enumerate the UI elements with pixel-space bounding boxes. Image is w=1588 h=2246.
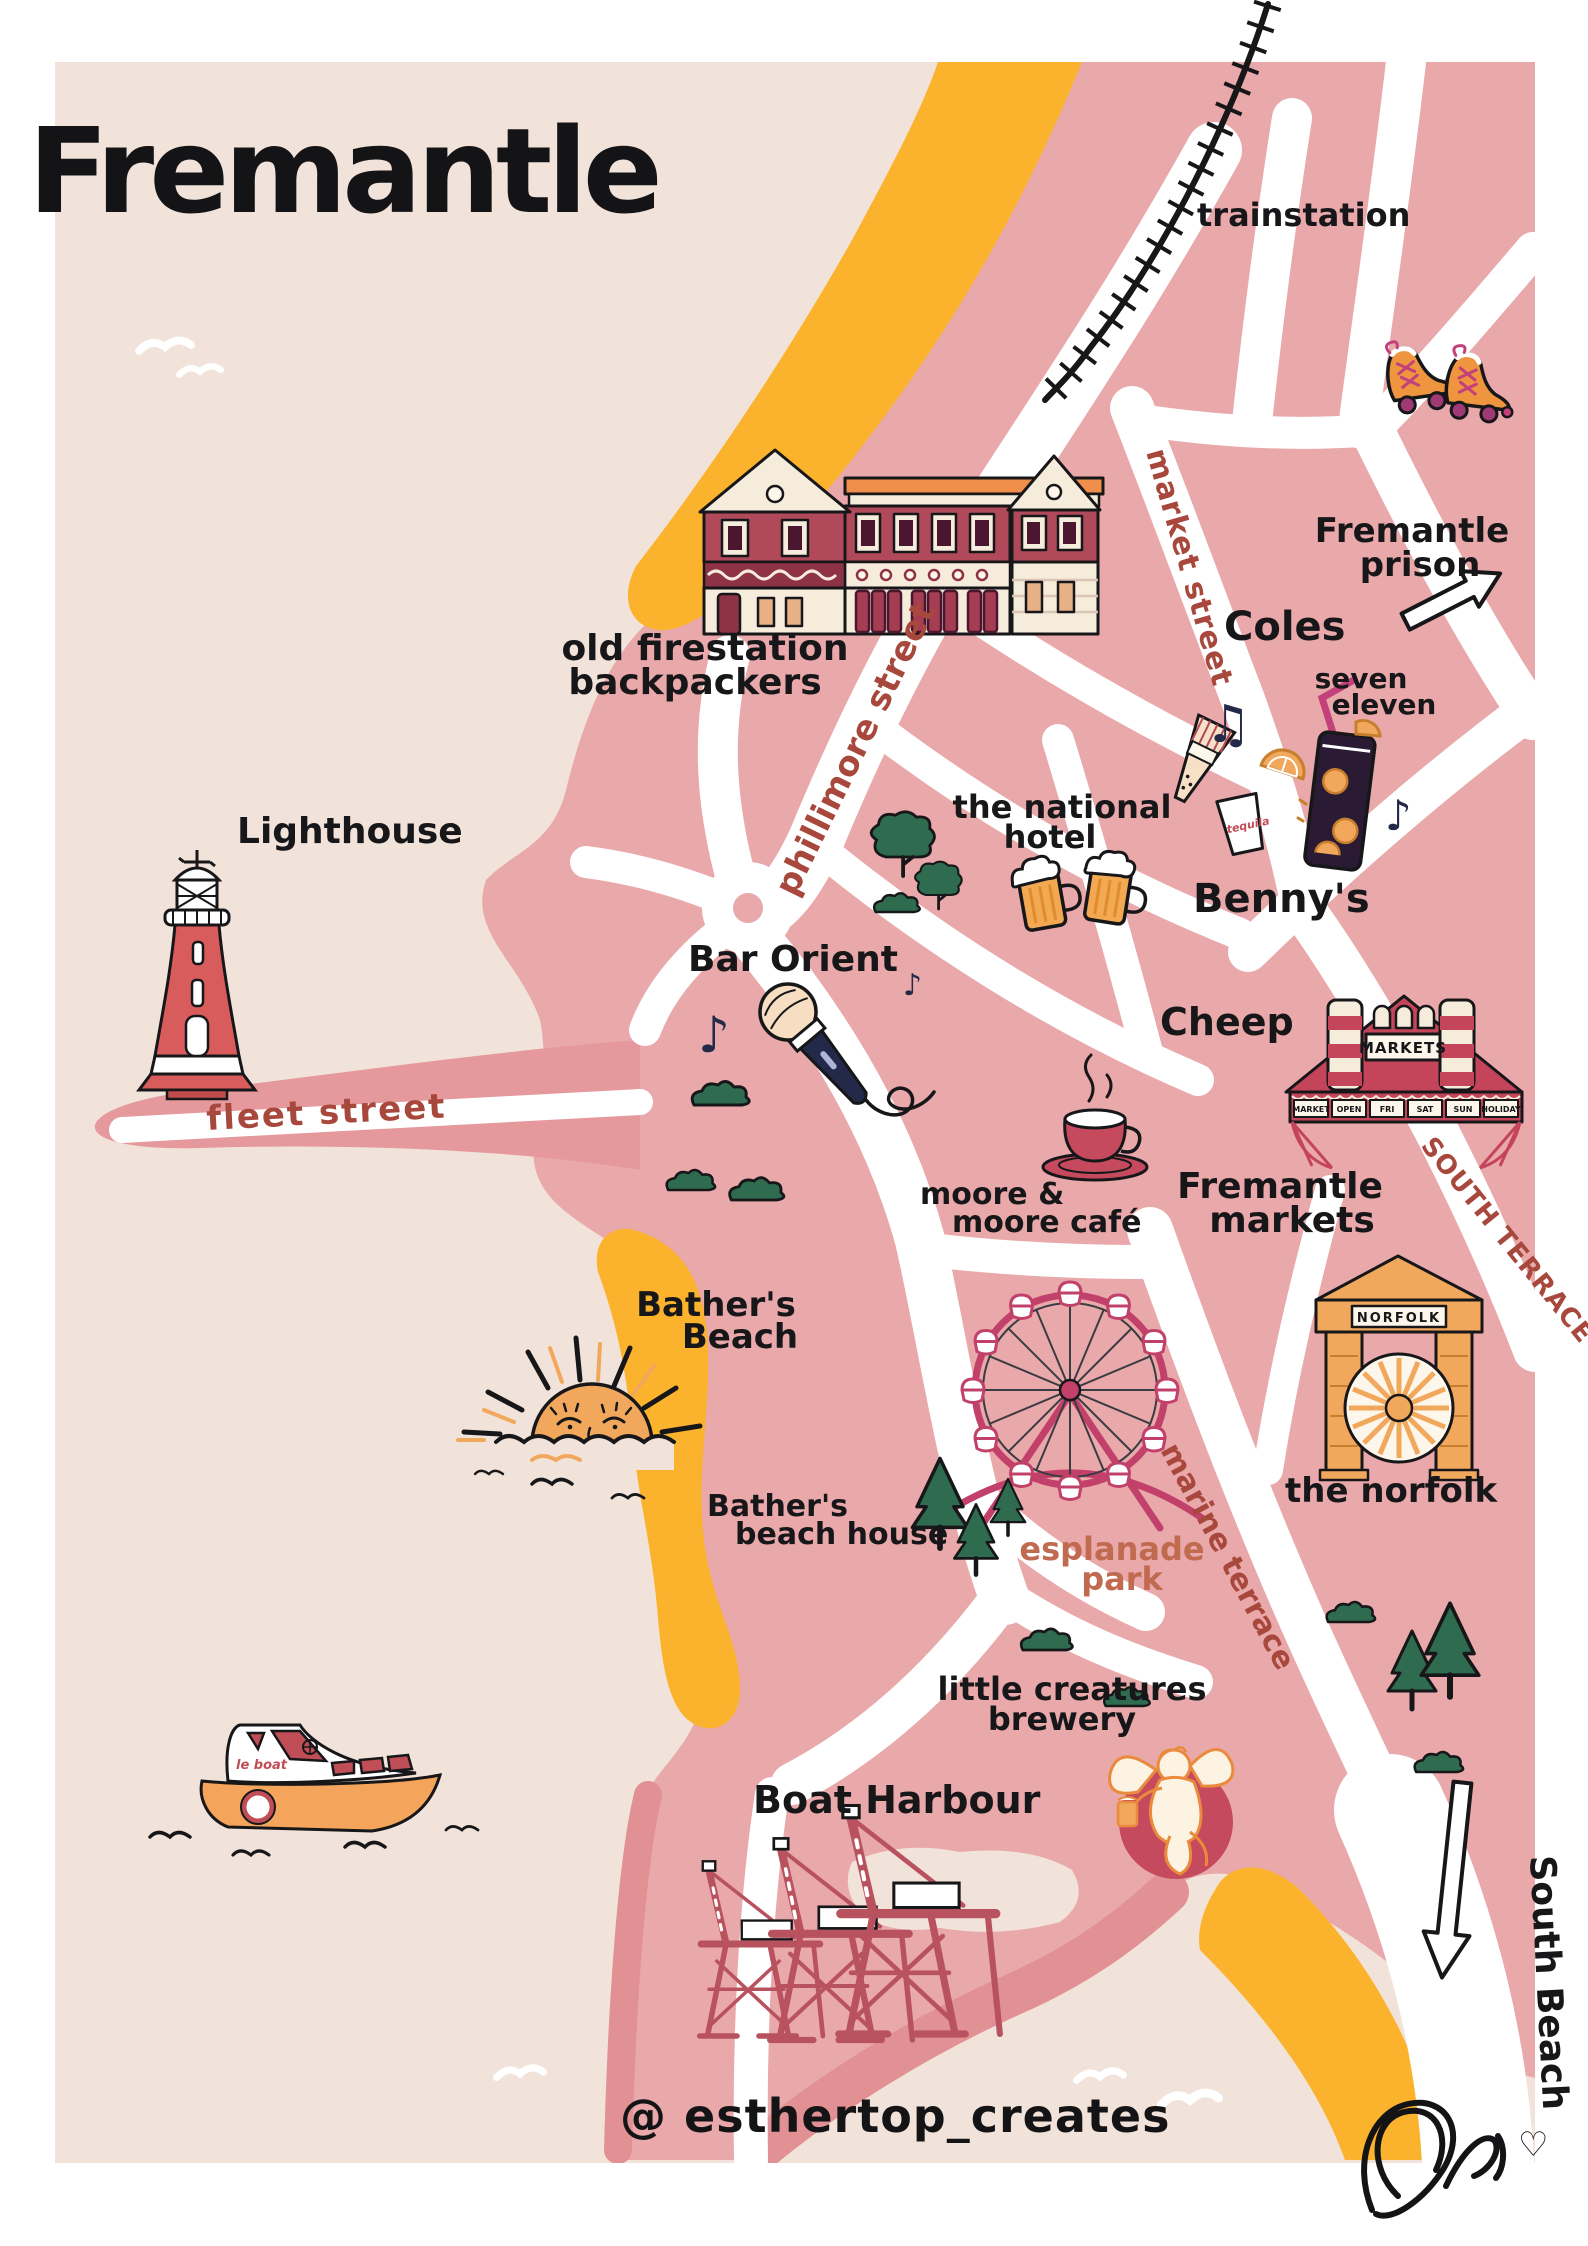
markets-day-sign: MARKET (1292, 1105, 1330, 1114)
norfolk-arch-sign: NORFOLK (1357, 1311, 1441, 1326)
markets-day-sign: HOLIDAY (1481, 1105, 1521, 1114)
markets-day-sign: OPEN (1337, 1105, 1362, 1114)
markets-day-sign: SUN (1454, 1105, 1473, 1114)
artist-credit: @ esthertop_creates (620, 2089, 1171, 2143)
markets-roof-sign: MARKETS (1359, 1039, 1447, 1057)
markets-day-sign: SAT (1417, 1105, 1434, 1114)
label-the-norfolk: the norfolk (1285, 1471, 1498, 1511)
music-note-icon: ♫ (1205, 695, 1252, 755)
label-bar-orient: Bar Orient (688, 939, 898, 980)
roundabout-island (733, 893, 763, 923)
music-note-icon: ♪ (698, 1006, 730, 1064)
harbour-inlet (848, 1848, 1079, 1932)
label-prison: prison (1360, 545, 1481, 585)
music-note-icon: ♪ (1385, 791, 1412, 840)
label-coles: Coles (1224, 604, 1345, 650)
label-seven-eleven: eleven (1332, 688, 1437, 721)
label-firestation: backpackers (568, 662, 821, 703)
label-moore-cafe: moore café (952, 1205, 1142, 1240)
markets-day-sign: FRI (1380, 1105, 1395, 1114)
label-national-hotel: hotel (1004, 818, 1097, 856)
label-cheep: Cheep (1160, 1000, 1294, 1044)
label-fremantle-markets: markets (1209, 1200, 1375, 1241)
label-bennys: Benny's (1193, 876, 1370, 922)
signature-heart-icon: ♡ (1518, 2125, 1548, 2165)
label-esplanade-park: park (1081, 1560, 1163, 1598)
map-canvas: tequila (0, 0, 1588, 2246)
map-title: Fremantle (28, 102, 658, 240)
label-bathers-beach: Beach (682, 1317, 798, 1357)
label-lighthouse: Lighthouse (237, 811, 463, 852)
old-firestation-illustration (700, 450, 1103, 634)
music-note-icon: ♪ (903, 968, 922, 1003)
norfolk-arch-illustration: NORFOLK (1316, 1256, 1482, 1480)
label-little-creatures: brewery (988, 1700, 1136, 1738)
label-trainstation: trainstation (1197, 196, 1410, 234)
boat-name-label: le boat (236, 1758, 288, 1773)
fremantle-map-poster: tequila (0, 0, 1588, 2246)
label-boat-harbour: Boat Harbour (753, 1778, 1041, 1822)
label-beach-house: beach house (735, 1517, 948, 1552)
